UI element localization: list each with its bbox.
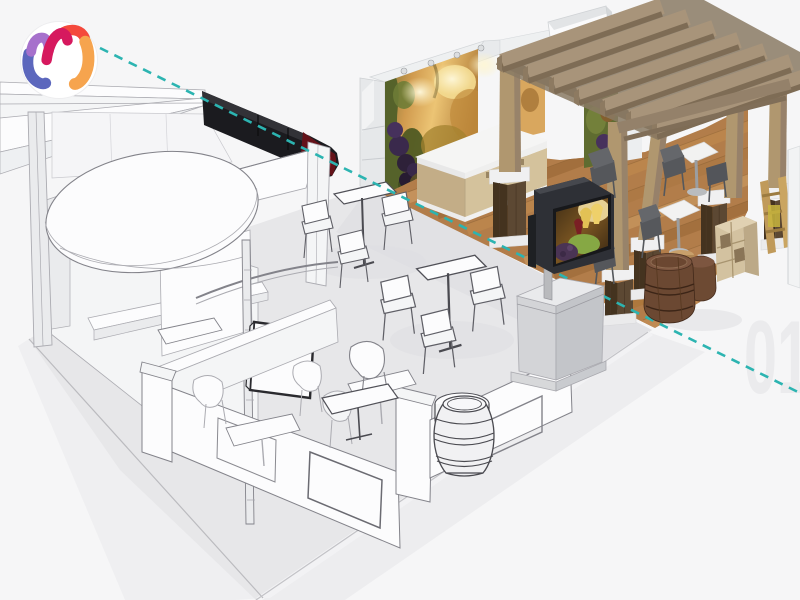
svg-text:01: 01: [744, 300, 800, 416]
